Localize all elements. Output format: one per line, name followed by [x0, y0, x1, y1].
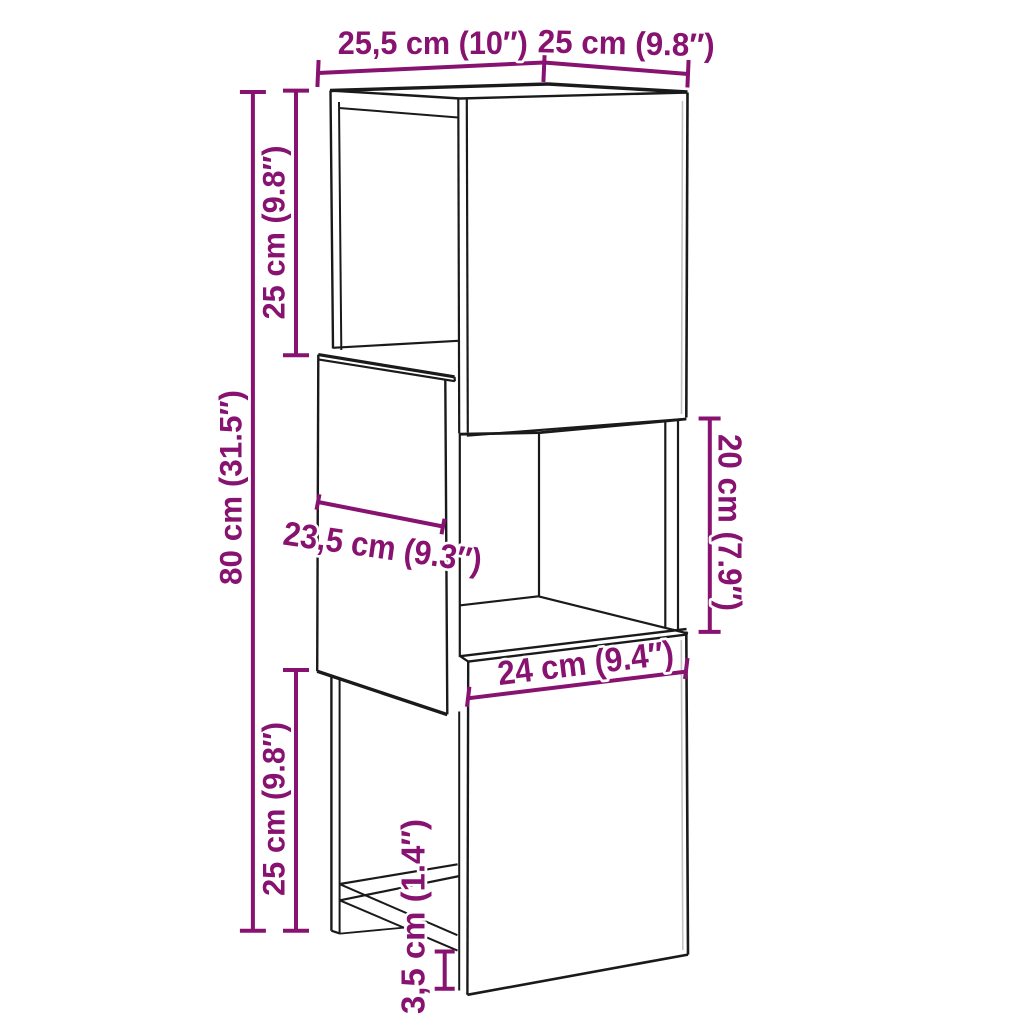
- svg-text:25,5 cm (10″): 25,5 cm (10″): [338, 25, 528, 61]
- svg-text:3,5 cm (1.4″): 3,5 cm (1.4″): [395, 819, 432, 1014]
- svg-text:25 cm (9.8″): 25 cm (9.8″): [255, 146, 291, 320]
- svg-text:25 cm (9.8″): 25 cm (9.8″): [537, 23, 715, 63]
- svg-text:20 cm (7.9″): 20 cm (7.9″): [712, 434, 749, 611]
- svg-text:80 cm (31.5″): 80 cm (31.5″): [213, 390, 249, 585]
- svg-text:25 cm (9.8″): 25 cm (9.8″): [255, 722, 291, 896]
